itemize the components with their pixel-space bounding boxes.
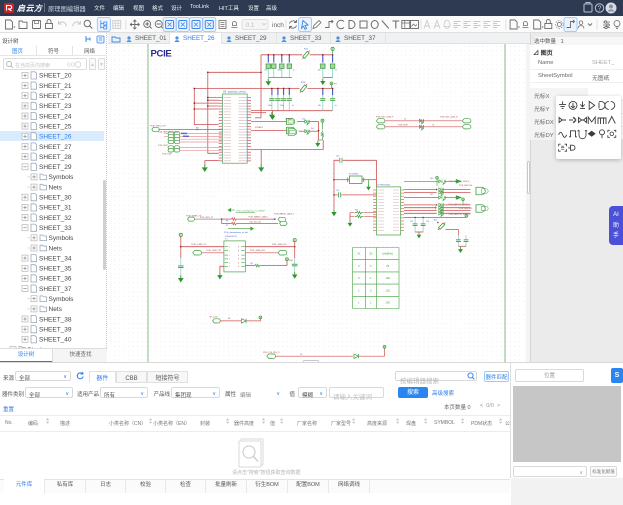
svg-text:1: 1 — [229, 262, 230, 264]
svg-text:1: 1 — [358, 301, 360, 305]
svg-text:PCIE_REFCLK4: PCIE_REFCLK4 — [459, 185, 472, 187]
svg-text:R12: R12 — [304, 49, 309, 51]
svg-text:D8: D8 — [228, 318, 230, 320]
svg-text:1u: 1u — [292, 105, 294, 107]
svg-text:8: 8 — [238, 247, 239, 249]
svg-text:0: 0 — [370, 264, 372, 268]
svg-text:C21: C21 — [336, 190, 339, 192]
svg-text:1u: 1u — [335, 70, 337, 72]
svg-text:SHEET_40: SHEET_40 — [39, 337, 72, 344]
svg-text:D12: D12 — [430, 178, 433, 180]
svg-text:SHEET_23: SHEET_23 — [39, 103, 72, 110]
svg-text:PCIE_WK3_OUT: PCIE_WK3_OUT — [150, 126, 167, 128]
svg-text:PCIE_100M_TX+: PCIE_100M_TX+ — [191, 244, 207, 246]
svg-text:8: 8 — [238, 262, 239, 264]
svg-text:1: 1 — [229, 255, 230, 257]
svg-text:SHEET_22: SHEET_22 — [39, 93, 72, 100]
svg-text:1: 1 — [358, 288, 360, 292]
svg-text:PCIE_WAKE#_LAN3_1: PCIE_WAKE#_LAN3_1 — [274, 212, 294, 215]
svg-text:SHEET_35: SHEET_35 — [39, 266, 72, 273]
svg-text:L2: L2 — [404, 119, 406, 121]
svg-text:R13: R13 — [301, 82, 306, 84]
svg-text:1: 1 — [370, 276, 372, 280]
svg-text:PCIe_deemphasis_to_def: PCIe_deemphasis_to_def — [224, 231, 248, 234]
svg-text:PCIE_WK3_TX: PCIE_WK3_TX — [200, 217, 214, 219]
svg-text:0.1: 0.1 — [246, 23, 255, 29]
svg-text:GO: GO — [67, 63, 75, 69]
svg-text:fclk(MHz): fclk(MHz) — [382, 252, 393, 256]
svg-text:PCIE_RX1_100M_N: PCIE_RX1_100M_N — [440, 117, 458, 119]
svg-text:Nets: Nets — [49, 306, 63, 313]
svg-text:SHEET_24: SHEET_24 — [39, 113, 72, 120]
svg-text:10u: 10u — [318, 70, 321, 72]
svg-text:D4: D4 — [311, 128, 314, 130]
svg-text:1u: 1u — [293, 70, 295, 72]
svg-text:1: 1 — [229, 247, 230, 249]
svg-text:X2 25MHz: X2 25MHz — [349, 174, 358, 176]
svg-text:SHEET_32: SHEET_32 — [39, 215, 72, 222]
svg-text:Nets: Nets — [49, 184, 63, 191]
svg-text:STRAP3: STRAP3 — [255, 126, 264, 129]
svg-text:SHEET_37: SHEET_37 — [39, 286, 72, 293]
svg-text:SHEET_34: SHEET_34 — [39, 255, 72, 262]
svg-text:R21: R21 — [355, 210, 358, 212]
svg-text:8: 8 — [238, 259, 239, 261]
svg-text:SHEET_25: SHEET_25 — [39, 123, 72, 130]
svg-text:PCIE_100M_RX+: PCIE_100M_RX+ — [272, 244, 288, 246]
svg-text:Symbols: Symbols — [49, 296, 75, 303]
svg-text:1: 1 — [229, 259, 230, 261]
svg-text:SHEET_31: SHEET_31 — [39, 205, 72, 212]
svg-text:PCIE_WAKE#_LAN3_L: PCIE_WAKE#_LAN3_L — [249, 215, 269, 218]
svg-text:1u: 1u — [335, 105, 337, 107]
svg-text:ASM1480_QFN42: ASM1480_QFN42 — [228, 91, 247, 94]
svg-text:100n: 100n — [278, 70, 282, 72]
svg-text:PCIE_RX1P: PCIE_RX1P — [398, 124, 409, 126]
svg-text:100: 100 — [386, 276, 391, 280]
svg-text:R8: R8 — [250, 263, 252, 265]
svg-text:0: 0 — [370, 288, 372, 292]
svg-text:PCIE: PCIE — [151, 49, 172, 60]
svg-text:PCIE_100M_TX1: PCIE_100M_TX1 — [207, 250, 222, 252]
svg-text:C26: C26 — [426, 221, 429, 223]
svg-text:SHEET_27: SHEET_27 — [39, 144, 72, 151]
svg-text:1: 1 — [229, 250, 230, 252]
svg-text:SHEET_20: SHEET_20 — [39, 73, 72, 80]
svg-text:PCIE_CLK_REQ_3: PCIE_CLK_REQ_3 — [263, 352, 279, 354]
svg-text:GP_CLK0: GP_CLK0 — [209, 317, 218, 319]
svg-text:S1: S1 — [357, 252, 361, 256]
svg-text:PCIE_REFCLK5: PCIE_REFCLK5 — [459, 208, 472, 210]
svg-text:SHEET_36: SHEET_36 — [39, 276, 72, 283]
svg-text:100n: 100n — [268, 105, 272, 107]
svg-text:1: 1 — [370, 301, 372, 305]
svg-text:SHEET_39: SHEET_39 — [39, 327, 72, 334]
svg-text:C25: C25 — [410, 221, 413, 223]
svg-text:S0: S0 — [369, 252, 373, 256]
svg-text:PCIE_REFCLK5_100M_P: PCIE_REFCLK5_100M_P — [449, 204, 471, 206]
svg-text:R6: R6 — [226, 221, 228, 223]
svg-text:10u: 10u — [265, 70, 268, 72]
svg-text:U7 9FGV0441: U7 9FGV0441 — [377, 184, 391, 186]
svg-text:SHEET_30: SHEET_30 — [39, 195, 72, 202]
svg-text:R7: R7 — [226, 225, 228, 227]
svg-text:PH: PH — [334, 84, 337, 86]
svg-text:?: ? — [598, 6, 602, 13]
svg-text:25: 25 — [386, 264, 389, 268]
svg-text:0: 0 — [358, 264, 360, 268]
svg-text:Nets: Nets — [49, 245, 63, 252]
svg-text:T1: T1 — [225, 239, 228, 241]
svg-text:PCIE_100M_RX1: PCIE_100M_RX1 — [250, 250, 265, 252]
svg-text:8: 8 — [238, 266, 239, 268]
svg-text:SHEET_29: SHEET_29 — [39, 164, 72, 171]
svg-text:D9: D9 — [300, 354, 302, 356]
svg-text:X-85H-RCR1: X-85H-RCR1 — [225, 236, 238, 238]
svg-text:100n: 100n — [280, 105, 284, 107]
svg-text:Symbols: Symbols — [49, 174, 75, 181]
svg-text:1: 1 — [229, 266, 230, 268]
svg-text:8: 8 — [238, 255, 239, 257]
svg-text:L3: L3 — [432, 125, 434, 127]
svg-text:125: 125 — [386, 288, 391, 292]
svg-text:0: 0 — [358, 276, 360, 280]
svg-text:PCIE_TX0P: PCIE_TX0P — [162, 154, 172, 156]
svg-text:SHEET_26: SHEET_26 — [39, 134, 72, 141]
svg-text:Symbols: Symbols — [49, 235, 75, 242]
svg-text:SHEET_21: SHEET_21 — [39, 83, 72, 90]
svg-text:10u: 10u — [318, 105, 321, 107]
svg-text:C20: C20 — [336, 156, 339, 158]
svg-text:PCIE_RX1_100M_P: PCIE_RX1_100M_P — [376, 117, 394, 119]
svg-text:165_100_101: 165_100_101 — [250, 221, 262, 223]
svg-text:D12: D12 — [430, 194, 433, 196]
svg-text:PCIE_RX0P: PCIE_RX0P — [158, 145, 169, 147]
svg-text:SHEET_28: SHEET_28 — [39, 154, 72, 161]
svg-text:8: 8 — [238, 250, 239, 252]
svg-text:U6 AND: U6 AND — [285, 117, 293, 120]
svg-text:R25: R25 — [434, 220, 437, 222]
svg-text:PCIE_REFCLK0_100M_P: PCIE_REFCLK0_100M_P — [158, 131, 180, 133]
svg-text:200: 200 — [386, 301, 391, 305]
svg-text:GND: GND — [289, 260, 294, 262]
svg-text:SHEET_38: SHEET_38 — [39, 316, 72, 323]
svg-text:inch: inch — [272, 22, 284, 29]
svg-text:U5: U5 — [223, 91, 227, 94]
svg-text:PCIe_deemphasis_to_GEN2: PCIe_deemphasis_to_GEN2 — [237, 209, 266, 212]
svg-text:SHEET_33: SHEET_33 — [39, 225, 72, 232]
